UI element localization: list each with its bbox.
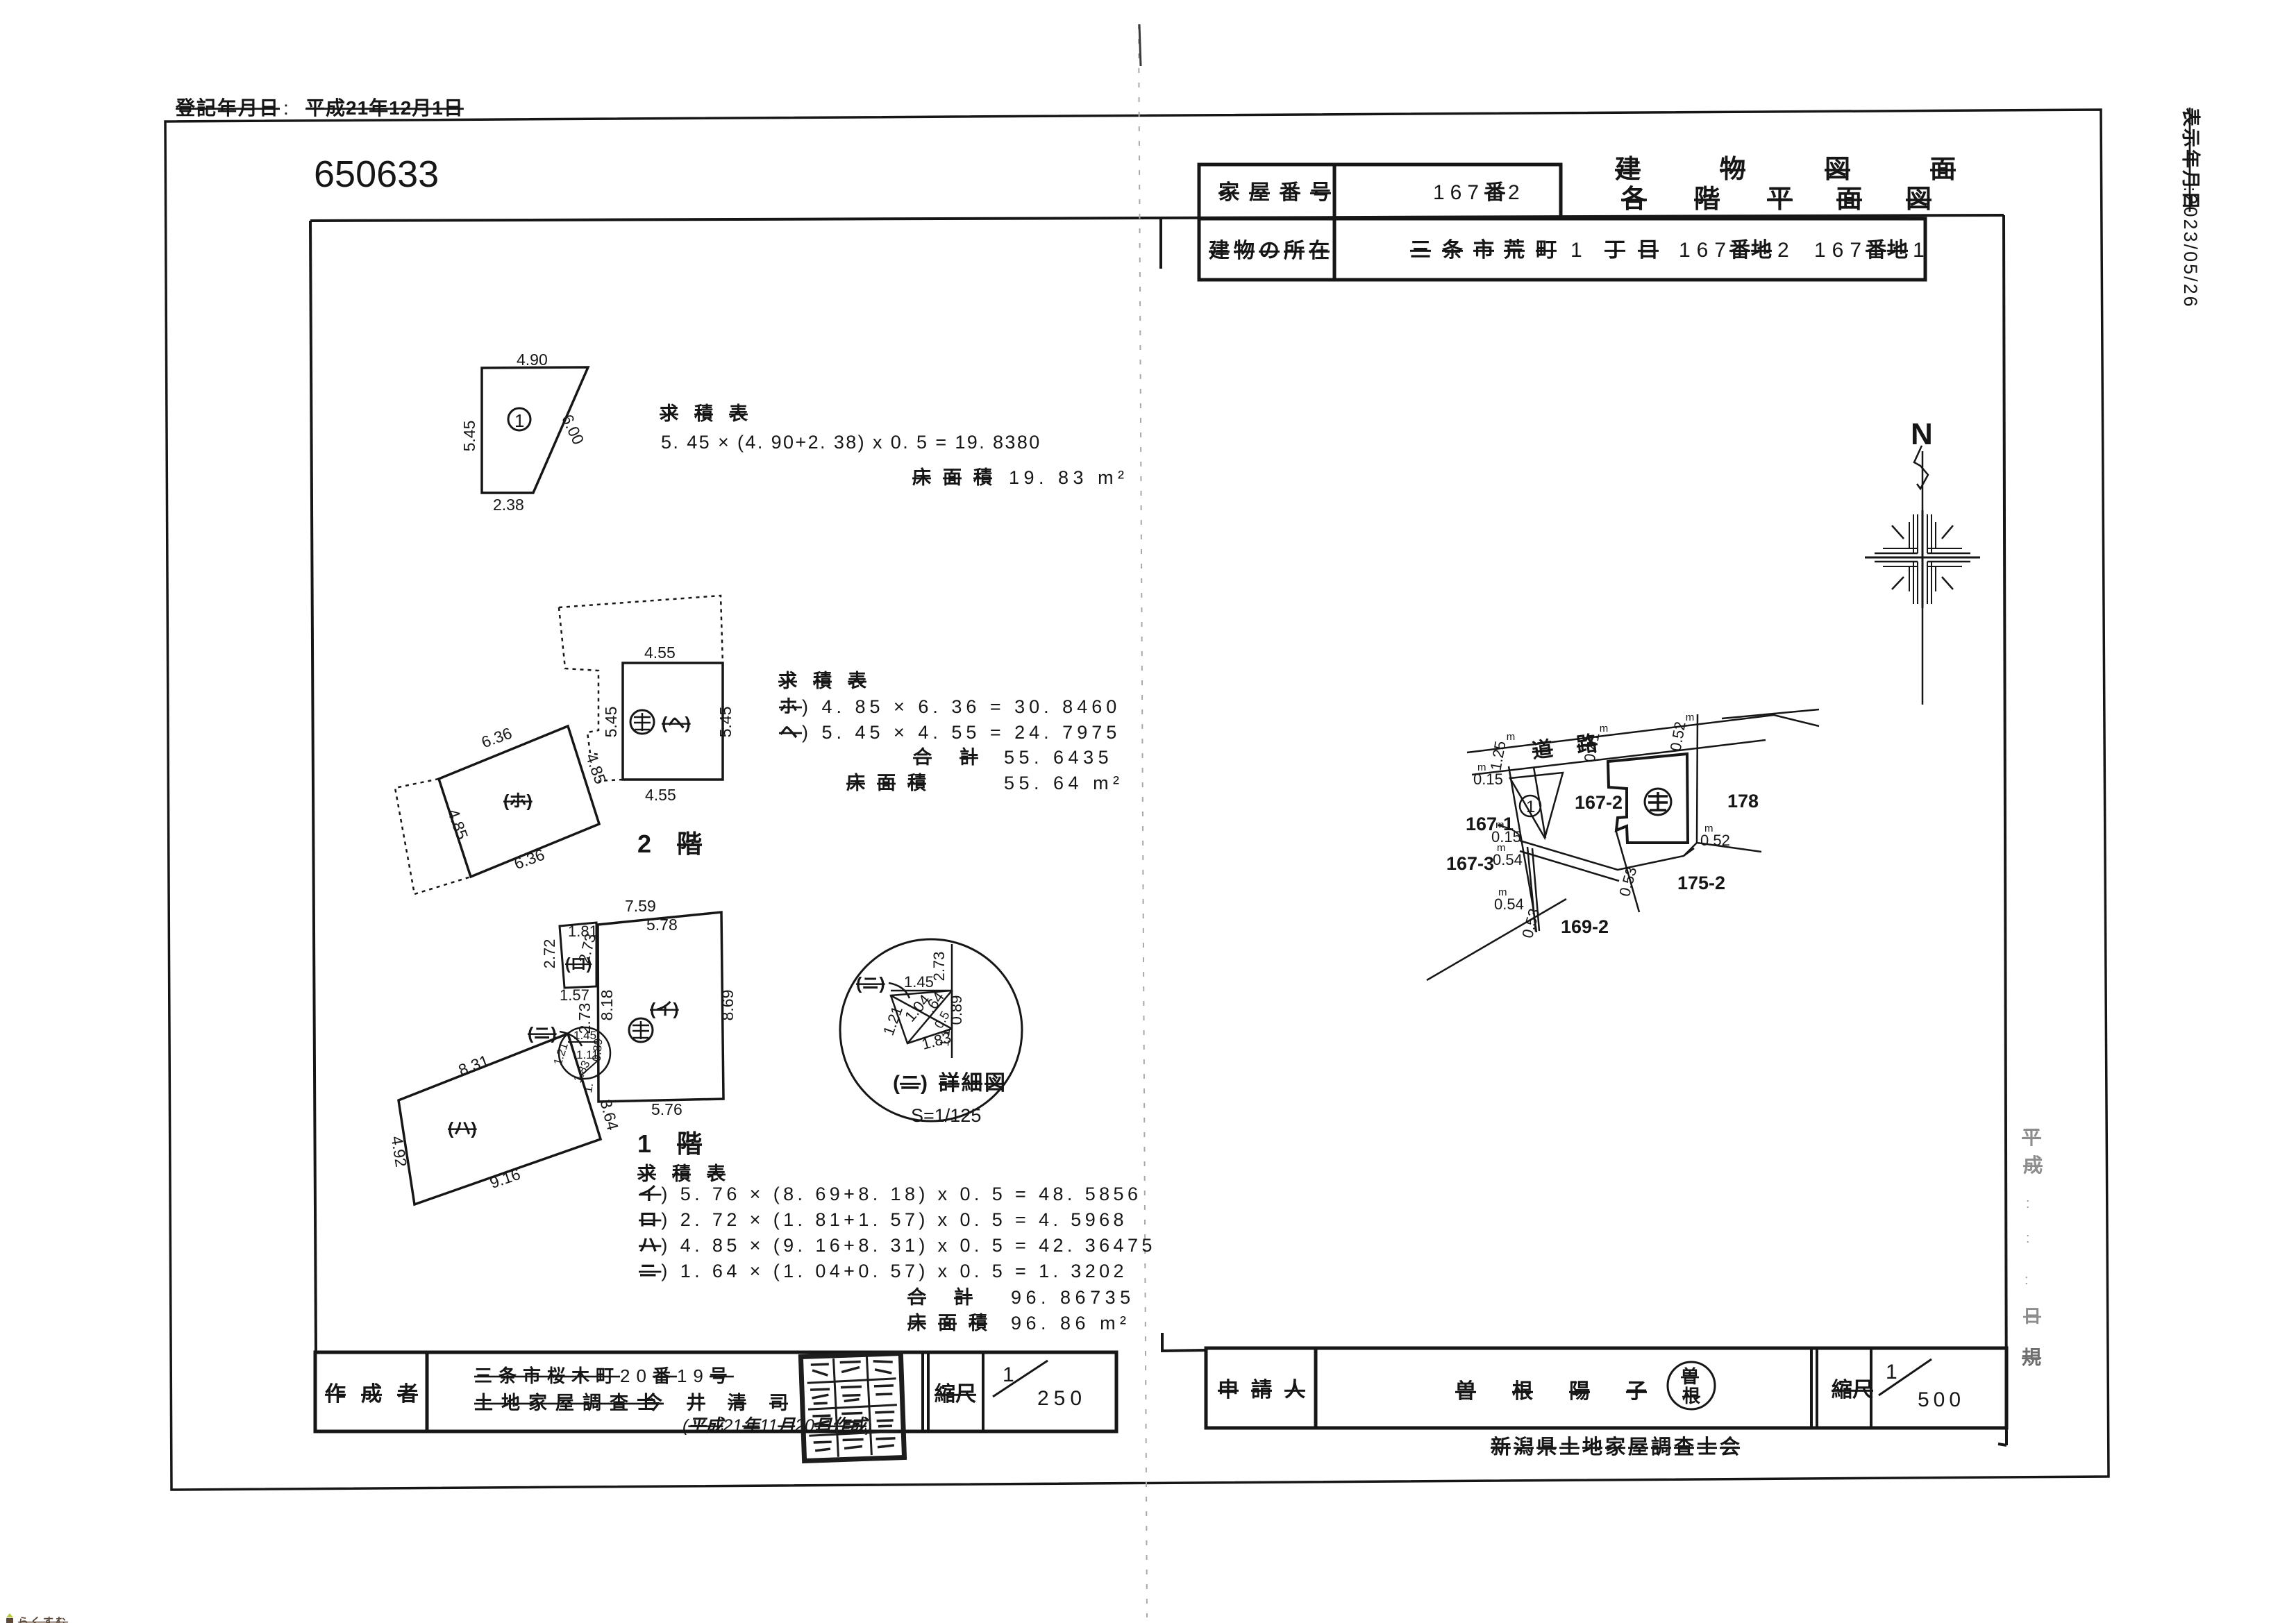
svg-text:潟: 潟 bbox=[1514, 1436, 1534, 1458]
svg-text:司: 司 bbox=[769, 1393, 788, 1413]
svg-text:日: 日 bbox=[2023, 1306, 2041, 1327]
svg-text:目: 目 bbox=[1638, 239, 1659, 262]
svg-text:1: 1 bbox=[637, 1129, 651, 1158]
svg-text:m: m bbox=[1507, 731, 1516, 743]
svg-text:250: 250 bbox=[1037, 1387, 1087, 1410]
svg-text:在: 在 bbox=[1309, 239, 1330, 262]
svg-text:5.45: 5.45 bbox=[602, 707, 620, 738]
svg-text:96. 86735: 96. 86735 bbox=[1011, 1287, 1135, 1308]
svg-text:県: 県 bbox=[1536, 1436, 1557, 1458]
svg-text:(イ): (イ) bbox=[650, 1000, 679, 1019]
svg-text:面: 面 bbox=[1930, 155, 1956, 183]
svg-text:町: 町 bbox=[1536, 239, 1557, 262]
svg-text:物: 物 bbox=[1720, 155, 1745, 183]
svg-text:屋: 屋 bbox=[1628, 1436, 1648, 1458]
svg-text:167-3: 167-3 bbox=[1446, 853, 1494, 874]
svg-text:5.78: 5.78 bbox=[646, 916, 678, 934]
svg-text:今: 今 bbox=[644, 1392, 662, 1413]
svg-text:床: 床 bbox=[912, 466, 931, 488]
svg-text:1.1: 1.1 bbox=[937, 1029, 953, 1048]
svg-text:三: 三 bbox=[1410, 239, 1431, 262]
svg-text:96. 86 m²: 96. 86 m² bbox=[1011, 1313, 1131, 1334]
svg-text:表: 表 bbox=[729, 403, 748, 424]
svg-text:5.45: 5.45 bbox=[460, 421, 478, 452]
svg-text:井: 井 bbox=[687, 1393, 705, 1413]
svg-text:1: 1 bbox=[1913, 239, 1925, 262]
svg-text:m: m bbox=[1686, 712, 1695, 723]
svg-text:縮尺: 縮尺 bbox=[935, 1383, 976, 1406]
svg-text:178: 178 bbox=[1727, 791, 1759, 811]
svg-text:請: 請 bbox=[1251, 1379, 1272, 1402]
svg-text:成: 成 bbox=[361, 1383, 382, 1406]
svg-text:登記年月日: 登記年月日 bbox=[175, 96, 280, 119]
svg-text:曽: 曽 bbox=[1681, 1366, 1699, 1387]
svg-text:らくすむ: らくすむ bbox=[18, 1616, 68, 1623]
svg-text:陽: 陽 bbox=[1569, 1380, 1590, 1403]
svg-text:m: m bbox=[1497, 842, 1506, 854]
svg-text:丁: 丁 bbox=[1604, 239, 1625, 262]
svg-text:建: 建 bbox=[1615, 155, 1641, 183]
svg-text:5.45: 5.45 bbox=[717, 707, 735, 738]
svg-text:(ホ): (ホ) bbox=[503, 791, 533, 811]
svg-text:積: 積 bbox=[694, 403, 713, 424]
svg-text:査: 査 bbox=[1674, 1436, 1694, 1458]
svg-text:55. 6435: 55. 6435 bbox=[1004, 747, 1113, 768]
svg-text:m: m bbox=[1704, 823, 1713, 834]
svg-text:土地家屋調査士: 土地家屋調査士 bbox=[474, 1392, 664, 1413]
svg-text:縮尺: 縮尺 bbox=[1832, 1379, 1873, 1402]
svg-text:士: 士 bbox=[1697, 1436, 1717, 1458]
svg-text:地: 地 bbox=[1582, 1436, 1602, 1458]
svg-text:地: 地 bbox=[1751, 239, 1772, 262]
svg-text::: : bbox=[2026, 1196, 2030, 1211]
svg-text:求: 求 bbox=[778, 671, 797, 691]
svg-text:0.89: 0.89 bbox=[590, 1038, 605, 1062]
svg-text:階: 階 bbox=[677, 830, 702, 858]
svg-text:面: 面 bbox=[938, 1313, 957, 1334]
svg-text:床: 床 bbox=[907, 1312, 926, 1334]
svg-text:荒: 荒 bbox=[1504, 239, 1525, 262]
svg-text:1.57: 1.57 bbox=[560, 986, 589, 1004]
svg-text:4.90: 4.90 bbox=[517, 351, 548, 369]
svg-text::: : bbox=[2026, 1231, 2030, 1246]
svg-text:根: 根 bbox=[1682, 1386, 1700, 1406]
svg-text:1: 1 bbox=[1526, 798, 1535, 816]
svg-text:三条市桜木町20番19号: 三条市桜木町20番19号 bbox=[474, 1365, 734, 1386]
svg-text:平: 平 bbox=[1767, 185, 1793, 213]
svg-text:道: 道 bbox=[1531, 738, 1555, 763]
svg-text:175-2: 175-2 bbox=[1677, 873, 1725, 893]
svg-text::: : bbox=[2025, 1272, 2029, 1288]
svg-text:屋: 屋 bbox=[1249, 181, 1270, 204]
svg-text:(ヘ): (ヘ) bbox=[662, 714, 691, 733]
svg-text:調: 調 bbox=[1651, 1436, 1671, 1458]
svg-text:7.59: 7.59 bbox=[625, 897, 656, 915]
svg-text:積: 積 bbox=[907, 773, 926, 793]
svg-text:2.72: 2.72 bbox=[541, 939, 558, 969]
svg-text:平成21年12月1日: 平成21年12月1日 bbox=[305, 96, 464, 119]
svg-text:番: 番 bbox=[1484, 181, 1506, 204]
svg-text:m: m bbox=[1477, 762, 1486, 773]
svg-text:ホ) 4. 85 × 6. 36 = 30. 8460: ホ) 4. 85 × 6. 36 = 30. 8460 bbox=[779, 696, 1121, 717]
svg-text:8.69: 8.69 bbox=[719, 990, 737, 1021]
svg-text:167: 167 bbox=[1679, 239, 1732, 262]
svg-text:の: の bbox=[1259, 239, 1280, 262]
svg-text:床: 床 bbox=[846, 772, 865, 793]
svg-text:積: 積 bbox=[672, 1163, 691, 1184]
svg-text:地: 地 bbox=[1887, 239, 1908, 262]
svg-text:4.55: 4.55 bbox=[645, 786, 676, 804]
svg-text:細: 細 bbox=[962, 1072, 982, 1095]
svg-text:合: 合 bbox=[907, 1286, 926, 1308]
svg-text:4.55: 4.55 bbox=[644, 644, 676, 662]
svg-text:500: 500 bbox=[1918, 1388, 1965, 1411]
svg-text:1: 1 bbox=[514, 410, 524, 431]
svg-text:家: 家 bbox=[1605, 1435, 1625, 1458]
svg-text:積: 積 bbox=[969, 1313, 987, 1334]
svg-text:積: 積 bbox=[813, 671, 832, 691]
svg-text:2.38: 2.38 bbox=[493, 496, 524, 514]
svg-text:積: 積 bbox=[973, 467, 992, 488]
svg-text:図: 図 bbox=[984, 1072, 1005, 1095]
svg-text:求: 求 bbox=[660, 403, 678, 424]
svg-text:1: 1 bbox=[1570, 239, 1582, 262]
svg-text:55. 64 m²: 55. 64 m² bbox=[1004, 773, 1124, 793]
svg-text:ロ) 2. 72 × (1. 81+1. 57) x 0.: ロ) 2. 72 × (1. 81+1. 57) x 0. 5 = 4. 596… bbox=[639, 1209, 1128, 1230]
svg-text:計: 計 bbox=[960, 746, 978, 768]
svg-text:167-1: 167-1 bbox=[1466, 814, 1514, 834]
svg-text:面: 面 bbox=[943, 467, 962, 488]
svg-text:0.89: 0.89 bbox=[948, 995, 965, 1025]
svg-text:169-2: 169-2 bbox=[1561, 916, 1609, 937]
svg-text:ニ) 1. 64 × (1. 04+0. 57) x 0.: ニ) 1. 64 × (1. 04+0. 57) x 0. 5 = 1. 320… bbox=[639, 1261, 1128, 1281]
svg-text:物: 物 bbox=[1234, 239, 1255, 262]
svg-text:清: 清 bbox=[728, 1393, 746, 1413]
svg-text:5. 45 × (4. 90+2. 38) x 0. 5 =: 5. 45 × (4. 90+2. 38) x 0. 5 = 19. 8380 bbox=[661, 432, 1041, 453]
svg-text:167: 167 bbox=[1814, 239, 1868, 262]
svg-text:平: 平 bbox=[2022, 1127, 2041, 1148]
svg-text:番: 番 bbox=[1280, 181, 1301, 204]
svg-text:図: 図 bbox=[1825, 155, 1850, 183]
svg-text:(ニ): (ニ) bbox=[893, 1072, 928, 1095]
svg-text:新: 新 bbox=[1491, 1436, 1511, 1458]
svg-text:イ) 5. 76 × (8. 69+8. 18) x 0.: イ) 5. 76 × (8. 69+8. 18) x 0. 5 = 48. 58… bbox=[639, 1184, 1141, 1204]
svg-text:650633: 650633 bbox=[314, 153, 439, 195]
svg-text:子: 子 bbox=[1626, 1380, 1647, 1403]
svg-text:m: m bbox=[1498, 886, 1507, 898]
svg-text:合: 合 bbox=[913, 746, 932, 768]
svg-text:5.76: 5.76 bbox=[651, 1100, 682, 1118]
svg-text:(ハ): (ハ) bbox=[448, 1119, 477, 1138]
svg-text:階: 階 bbox=[677, 1129, 702, 1158]
svg-text:人: 人 bbox=[1284, 1379, 1305, 1402]
svg-text:m: m bbox=[1600, 723, 1609, 734]
svg-text:号: 号 bbox=[1310, 181, 1331, 204]
svg-text:建: 建 bbox=[1209, 239, 1230, 262]
svg-text:番: 番 bbox=[1729, 239, 1751, 262]
svg-text:番: 番 bbox=[1866, 239, 1887, 262]
svg-text:求: 求 bbox=[637, 1163, 656, 1184]
svg-text:所: 所 bbox=[1284, 239, 1305, 262]
svg-text:167-2: 167-2 bbox=[1575, 792, 1623, 813]
svg-text:1: 1 bbox=[1886, 1361, 1897, 1384]
svg-text:階: 階 bbox=[1694, 185, 1720, 213]
svg-text:曽: 曽 bbox=[1455, 1379, 1476, 1403]
svg-text:2: 2 bbox=[1508, 181, 1520, 204]
svg-text:土: 土 bbox=[1559, 1436, 1579, 1458]
svg-text:図: 図 bbox=[1906, 185, 1932, 213]
svg-text:面: 面 bbox=[877, 773, 896, 793]
svg-text:成: 成 bbox=[2023, 1154, 2043, 1176]
svg-text:規: 規 bbox=[2022, 1347, 2041, 1368]
svg-text:19. 83 m²: 19. 83 m² bbox=[1009, 467, 1129, 488]
svg-text:詳: 詳 bbox=[939, 1071, 960, 1095]
svg-text:167: 167 bbox=[1433, 181, 1484, 204]
svg-text:計: 計 bbox=[954, 1286, 973, 1308]
svg-text:表: 表 bbox=[848, 671, 866, 691]
svg-text:表: 表 bbox=[707, 1163, 726, 1184]
svg-text:根: 根 bbox=[1512, 1380, 1533, 1403]
svg-text:作: 作 bbox=[325, 1383, 346, 1406]
svg-text:ヘ) 5. 45 × 4. 55 = 24. 7975: ヘ) 5. 45 × 4. 55 = 24. 7975 bbox=[779, 722, 1121, 743]
svg-text:(ニ): (ニ) bbox=[856, 974, 885, 993]
svg-text:条: 条 bbox=[1442, 239, 1463, 262]
svg-text:(平成21年11月20日作成): (平成21年11月20日作成) bbox=[682, 1416, 872, 1436]
svg-text:S=1/125: S=1/125 bbox=[911, 1105, 981, 1126]
svg-text:市: 市 bbox=[1473, 238, 1494, 262]
svg-text:8.18: 8.18 bbox=[598, 990, 616, 1021]
svg-text:2: 2 bbox=[637, 830, 651, 858]
svg-text:者: 者 bbox=[397, 1383, 418, 1406]
svg-text::: : bbox=[283, 97, 289, 119]
svg-text:申: 申 bbox=[1218, 1379, 1239, 1402]
svg-text:2: 2 bbox=[1777, 239, 1789, 262]
svg-text:面: 面 bbox=[1836, 185, 1862, 213]
svg-text:会: 会 bbox=[1720, 1436, 1740, 1458]
svg-text::2023/05/26: :2023/05/26 bbox=[2180, 187, 2201, 309]
svg-text:ハ) 4. 85 × (9. 16+8. 31) x 0.: ハ) 4. 85 × (9. 16+8. 31) x 0. 5 = 42. 36… bbox=[639, 1235, 1156, 1256]
svg-text:各: 各 bbox=[1621, 185, 1648, 213]
svg-text:家: 家 bbox=[1218, 181, 1239, 204]
svg-text:1.45: 1.45 bbox=[904, 973, 934, 991]
